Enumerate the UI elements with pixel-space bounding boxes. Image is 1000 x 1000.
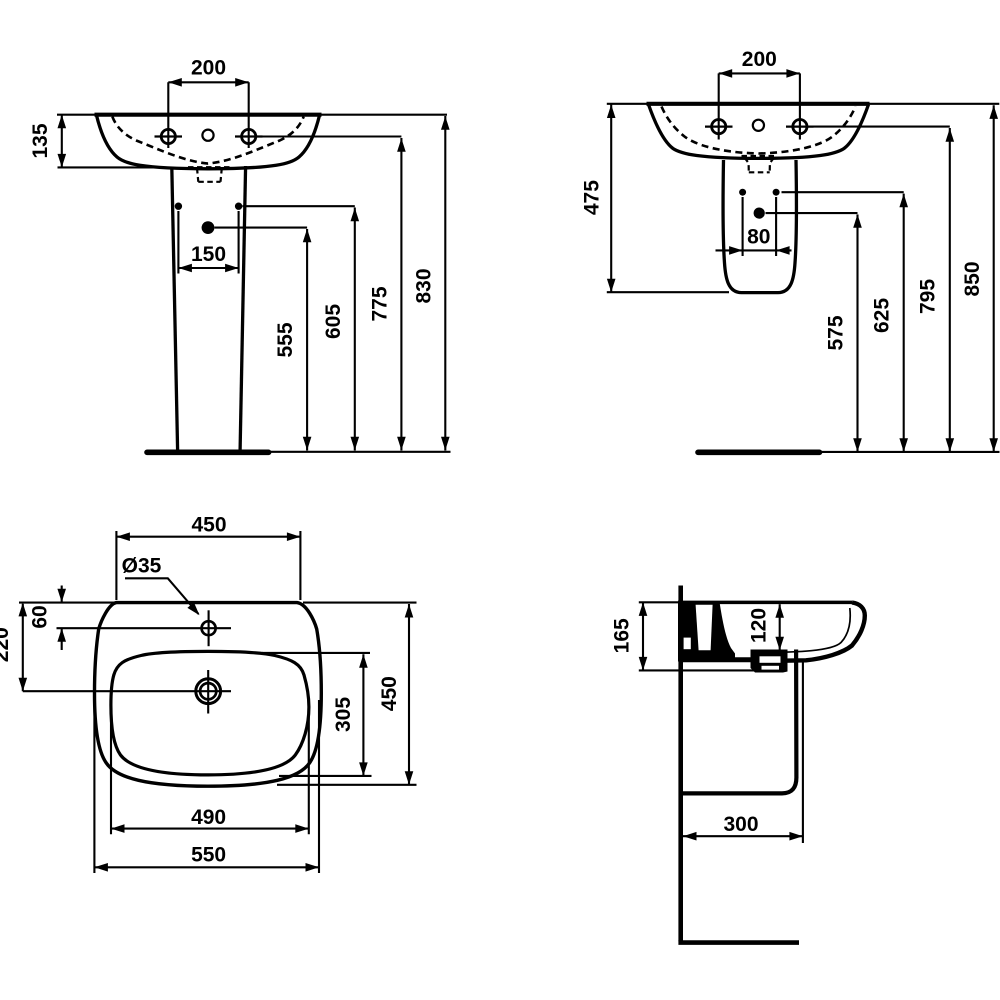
svg-text:450: 450 xyxy=(191,514,226,537)
svg-text:490: 490 xyxy=(191,806,226,829)
svg-text:575: 575 xyxy=(824,315,847,350)
svg-text:120: 120 xyxy=(747,608,770,643)
svg-text:550: 550 xyxy=(191,844,226,867)
svg-text:850: 850 xyxy=(961,261,984,296)
svg-text:795: 795 xyxy=(917,279,940,314)
svg-text:300: 300 xyxy=(723,813,758,836)
svg-text:150: 150 xyxy=(191,243,226,266)
svg-text:450: 450 xyxy=(378,676,401,711)
svg-text:775: 775 xyxy=(368,286,391,321)
svg-text:Ø35: Ø35 xyxy=(122,555,162,578)
svg-text:220: 220 xyxy=(0,627,13,662)
svg-text:80: 80 xyxy=(747,226,770,249)
svg-text:165: 165 xyxy=(610,618,633,653)
svg-text:555: 555 xyxy=(274,322,297,357)
svg-text:830: 830 xyxy=(412,268,435,303)
svg-text:200: 200 xyxy=(742,48,777,71)
svg-text:305: 305 xyxy=(332,697,355,732)
svg-text:475: 475 xyxy=(580,180,603,215)
svg-text:625: 625 xyxy=(871,298,894,333)
svg-text:135: 135 xyxy=(29,123,52,158)
svg-text:605: 605 xyxy=(322,304,345,339)
svg-text:200: 200 xyxy=(191,57,226,80)
svg-text:60: 60 xyxy=(29,605,52,628)
